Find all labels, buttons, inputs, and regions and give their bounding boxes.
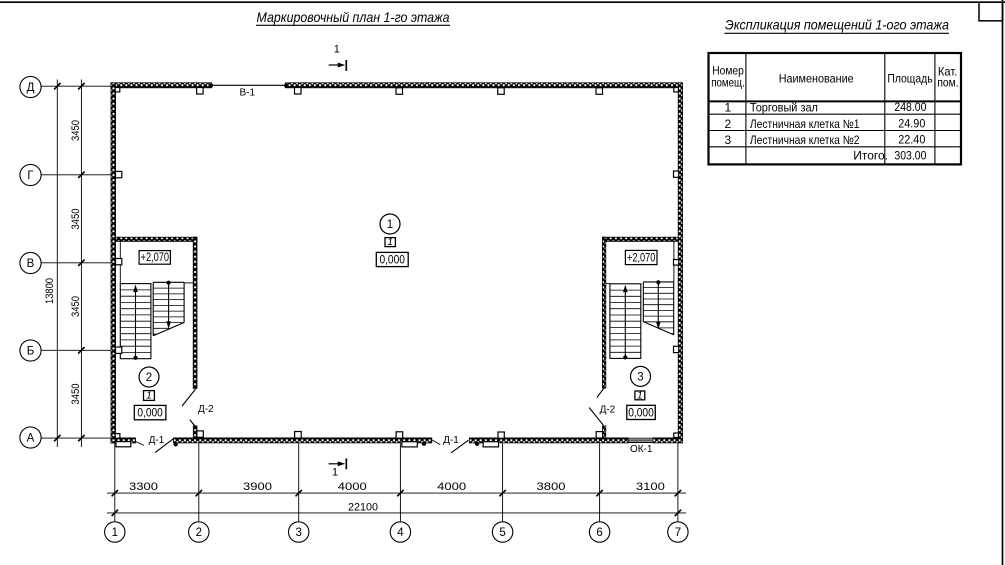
svg-text:+2,070: +2,070 <box>141 252 170 264</box>
svg-text:2: 2 <box>146 372 152 384</box>
svg-text:1: 1 <box>387 219 393 231</box>
svg-text:помещ.: помещ. <box>711 76 745 90</box>
svg-text:В-1: В-1 <box>240 87 256 98</box>
svg-text:2: 2 <box>724 117 731 131</box>
svg-text:3: 3 <box>295 527 301 539</box>
svg-text:1: 1 <box>724 101 731 115</box>
svg-text:0,000: 0,000 <box>379 254 405 266</box>
svg-text:В: В <box>27 258 35 270</box>
svg-text:5: 5 <box>499 527 505 539</box>
svg-text:Б: Б <box>27 346 35 358</box>
svg-text:3800: 3800 <box>537 481 566 493</box>
svg-text:Д: Д <box>27 82 35 94</box>
svg-text:248.00: 248.00 <box>894 100 926 114</box>
svg-text:3450: 3450 <box>70 296 82 317</box>
svg-text:1: 1 <box>387 237 393 248</box>
svg-text:0,000: 0,000 <box>137 408 163 420</box>
svg-text:Маркировочный план 1-го этажа: Маркировочный план 1-го этажа <box>257 9 450 25</box>
svg-text:пом.: пом. <box>937 76 958 90</box>
svg-text:Итого.: Итого. <box>853 149 888 163</box>
svg-text:Площадь: Площадь <box>887 72 932 86</box>
svg-text:0,000: 0,000 <box>628 407 654 419</box>
svg-text:+2,070: +2,070 <box>627 252 656 264</box>
svg-text:Д-1: Д-1 <box>443 435 459 446</box>
svg-text:13800: 13800 <box>44 278 56 304</box>
svg-text:А: А <box>27 433 35 445</box>
svg-text:303.00: 303.00 <box>894 149 926 163</box>
svg-text:2: 2 <box>196 527 202 539</box>
svg-text:Экспликация помещений 1-ого эт: Экспликация помещений 1-ого этажа <box>725 17 949 33</box>
svg-text:Торговый зал: Торговый зал <box>750 101 818 115</box>
svg-text:Наименование: Наименование <box>779 71 854 85</box>
svg-text:1: 1 <box>637 390 643 401</box>
svg-text:22100: 22100 <box>348 502 378 514</box>
svg-text:Лестничная клетка №1: Лестничная клетка №1 <box>750 117 860 131</box>
svg-text:3100: 3100 <box>636 481 665 493</box>
svg-text:3450: 3450 <box>70 209 82 230</box>
svg-text:3: 3 <box>637 371 643 383</box>
svg-text:1: 1 <box>112 527 118 539</box>
svg-text:3: 3 <box>724 133 731 147</box>
svg-text:3450: 3450 <box>70 384 82 405</box>
svg-text:Д-2: Д-2 <box>600 405 616 416</box>
svg-text:Д-1: Д-1 <box>149 435 165 446</box>
svg-text:1: 1 <box>334 44 340 56</box>
svg-text:7: 7 <box>675 527 681 539</box>
svg-text:Лестничная клетка №2: Лестничная клетка №2 <box>750 133 860 147</box>
svg-text:22.40: 22.40 <box>898 133 925 147</box>
svg-text:ОК-1: ОК-1 <box>630 444 653 455</box>
svg-text:4000: 4000 <box>338 481 367 493</box>
svg-text:3900: 3900 <box>243 481 272 493</box>
svg-text:3300: 3300 <box>129 481 158 493</box>
svg-text:Г: Г <box>27 170 34 182</box>
svg-text:3450: 3450 <box>70 120 82 141</box>
svg-text:1: 1 <box>146 391 152 402</box>
svg-text:4000: 4000 <box>437 481 466 493</box>
svg-text:4: 4 <box>397 527 404 539</box>
svg-text:24.90: 24.90 <box>898 116 925 130</box>
svg-text:1: 1 <box>332 466 338 478</box>
svg-text:Д-2: Д-2 <box>198 404 214 415</box>
svg-text:6: 6 <box>596 527 602 539</box>
